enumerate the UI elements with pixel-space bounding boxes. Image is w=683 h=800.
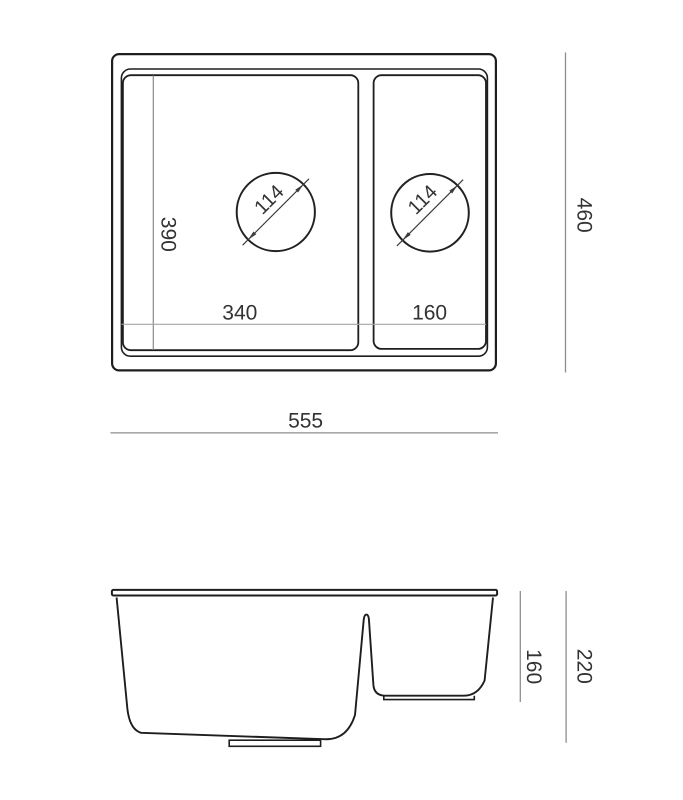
svg-text:160: 160	[412, 302, 447, 325]
svg-text:160: 160	[522, 649, 545, 684]
svg-text:114: 114	[404, 181, 442, 219]
svg-text:340: 340	[222, 302, 257, 325]
svg-text:114: 114	[250, 181, 288, 219]
svg-text:460: 460	[572, 198, 595, 233]
svg-text:555: 555	[288, 409, 323, 432]
svg-text:390: 390	[156, 217, 179, 252]
svg-text:220: 220	[572, 649, 595, 684]
